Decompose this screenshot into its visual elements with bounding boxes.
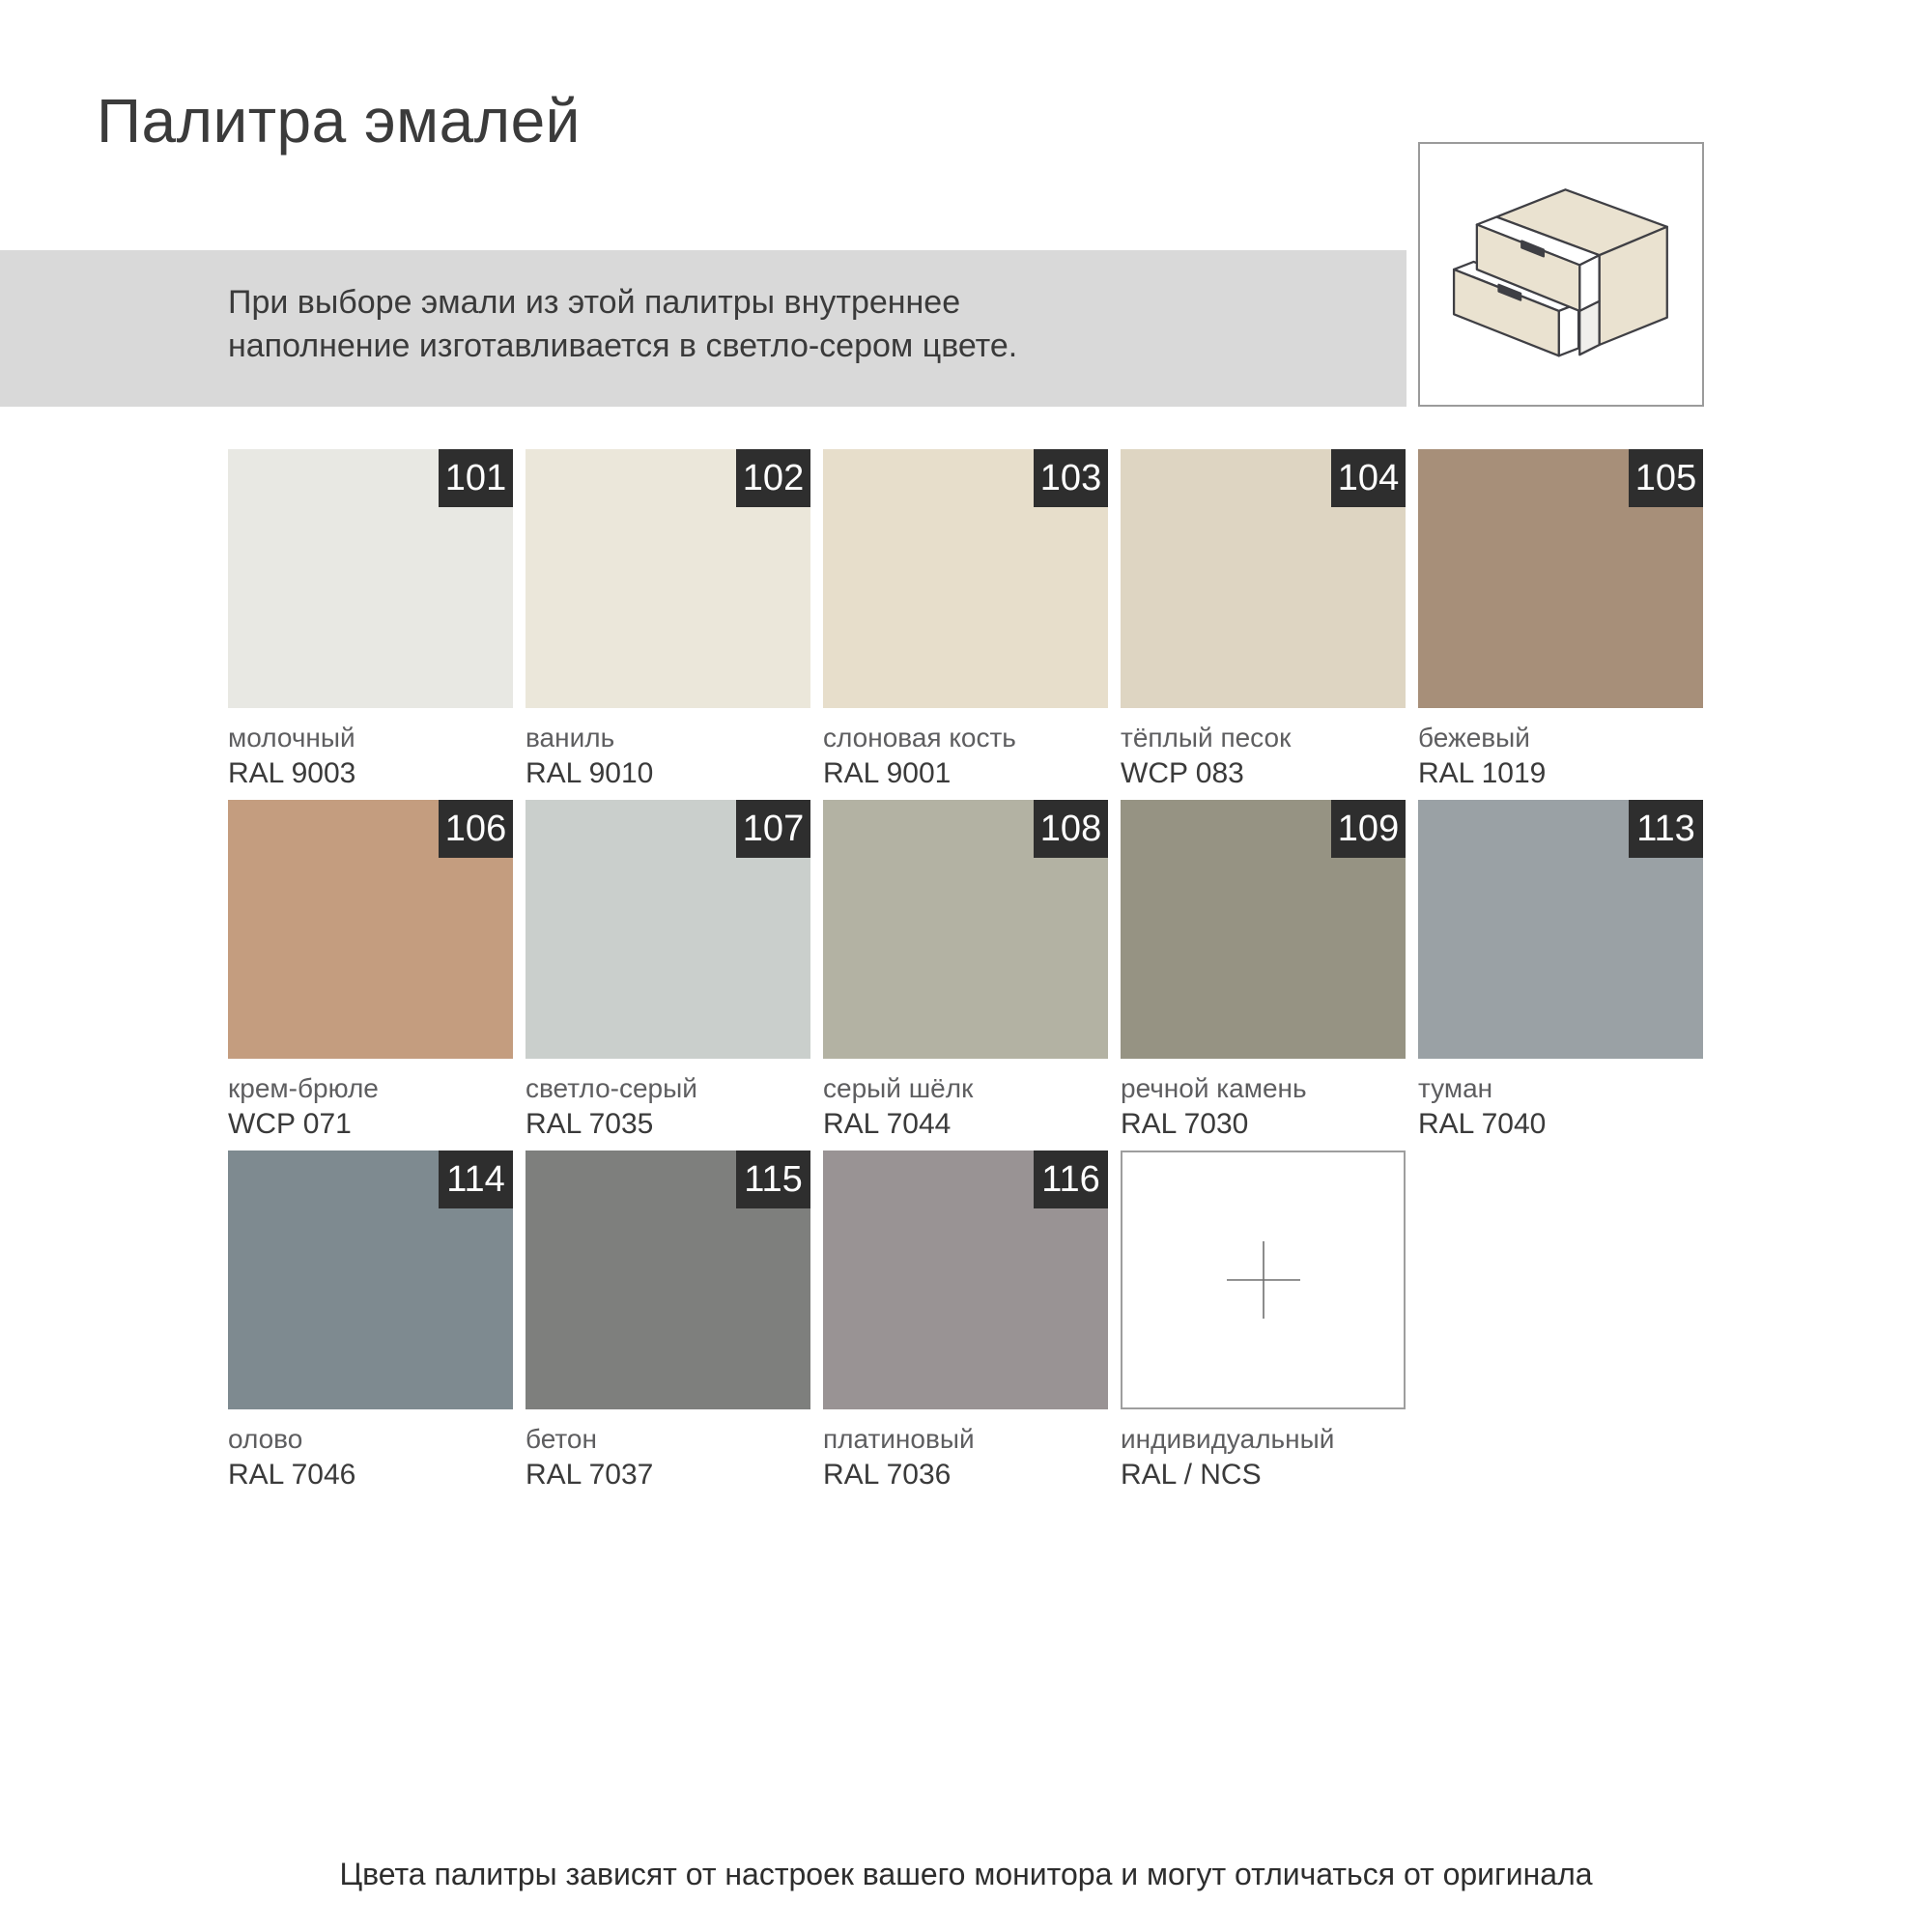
swatch-cell: 107 светло-серый RAL 7035 <box>526 800 810 1151</box>
swatch-number-badge: 109 <box>1331 800 1406 858</box>
swatch-cell: 109 речной камень RAL 7030 <box>1121 800 1406 1151</box>
color-swatch: 115 <box>526 1151 810 1409</box>
color-swatch: 113 <box>1418 800 1703 1059</box>
swatch-labels: платиновый RAL 7036 <box>823 1421 1108 1493</box>
drawer-cabinet-icon <box>1420 144 1702 405</box>
swatch-number-badge: 116 <box>1034 1151 1108 1208</box>
color-swatch: 105 <box>1418 449 1703 708</box>
swatch-number-badge: 105 <box>1629 449 1703 507</box>
swatch-cell: 102 ваниль RAL 9010 <box>526 449 810 800</box>
swatch-code: RAL 7040 <box>1418 1106 1703 1143</box>
swatch-code: RAL 7035 <box>526 1106 810 1143</box>
swatch-labels: индивидуальный RAL / NCS <box>1121 1421 1406 1493</box>
swatch-code: RAL 7037 <box>526 1457 810 1493</box>
swatch-name: молочный <box>228 720 513 755</box>
swatch-number-badge: 103 <box>1034 449 1108 507</box>
swatch-labels: бетон RAL 7037 <box>526 1421 810 1493</box>
info-banner-line2: наполнение изготавливается в светло-серо… <box>228 325 1017 368</box>
swatch-cell: 113 туман RAL 7040 <box>1418 800 1703 1151</box>
plus-icon <box>1223 1239 1304 1321</box>
swatch-code: RAL / NCS <box>1121 1457 1406 1493</box>
swatch-name: слоновая кость <box>823 720 1108 755</box>
swatch-name: платиновый <box>823 1421 1108 1457</box>
swatch-labels: речной камень RAL 7030 <box>1121 1070 1406 1143</box>
swatch-cell: 104 тёплый песок WCP 083 <box>1121 449 1406 800</box>
swatch-code: RAL 9010 <box>526 755 810 792</box>
swatch-code: RAL 7046 <box>228 1457 513 1493</box>
swatch-number-badge: 107 <box>736 800 810 858</box>
swatch-cell: 101 молочный RAL 9003 <box>228 449 513 800</box>
color-swatch: 107 <box>526 800 810 1059</box>
swatch-code: RAL 1019 <box>1418 755 1703 792</box>
swatch-number-badge: 106 <box>439 800 513 858</box>
swatch-cell: 106 крем-брюле WCP 071 <box>228 800 513 1151</box>
footer-disclaimer: Цвета палитры зависят от настроек вашего… <box>0 1857 1932 1892</box>
swatch-name: ваниль <box>526 720 810 755</box>
swatch-code: RAL 9003 <box>228 755 513 792</box>
swatch-number-badge: 114 <box>439 1151 513 1208</box>
swatch-labels: крем-брюле WCP 071 <box>228 1070 513 1143</box>
swatch-name: речной камень <box>1121 1070 1406 1106</box>
swatch-name: бежевый <box>1418 720 1703 755</box>
color-swatch: 116 <box>823 1151 1108 1409</box>
swatch-name: тёплый песок <box>1121 720 1406 755</box>
color-swatch: 103 <box>823 449 1108 708</box>
swatch-cell: 105 бежевый RAL 1019 <box>1418 449 1703 800</box>
swatch-labels: слоновая кость RAL 9001 <box>823 720 1108 792</box>
color-swatch: 109 <box>1121 800 1406 1059</box>
swatch-code: RAL 7036 <box>823 1457 1108 1493</box>
swatch-cell: 108 серый шёлк RAL 7044 <box>823 800 1108 1151</box>
swatch-cell: 114 олово RAL 7046 <box>228 1151 513 1501</box>
swatch-number-badge: 101 <box>439 449 513 507</box>
swatch-labels: бежевый RAL 1019 <box>1418 720 1703 792</box>
swatch-cell: 116 платиновый RAL 7036 <box>823 1151 1108 1501</box>
swatch-number-badge: 108 <box>1034 800 1108 858</box>
swatch-name: светло-серый <box>526 1070 810 1106</box>
swatch-labels: ваниль RAL 9010 <box>526 720 810 792</box>
cabinet-illustration-frame <box>1418 142 1704 407</box>
swatch-cell: 103 слоновая кость RAL 9001 <box>823 449 1108 800</box>
swatch-name: крем-брюле <box>228 1070 513 1106</box>
swatch-number-badge: 113 <box>1629 800 1703 858</box>
swatch-name: олово <box>228 1421 513 1457</box>
swatch-code: RAL 9001 <box>823 755 1108 792</box>
color-swatch <box>1121 1151 1406 1409</box>
swatch-cell: 115 бетон RAL 7037 <box>526 1151 810 1501</box>
swatch-labels: молочный RAL 9003 <box>228 720 513 792</box>
swatch-labels: светло-серый RAL 7035 <box>526 1070 810 1143</box>
swatch-labels: тёплый песок WCP 083 <box>1121 720 1406 792</box>
color-swatch: 104 <box>1121 449 1406 708</box>
swatch-number-badge: 115 <box>736 1151 810 1208</box>
swatch-number-badge: 104 <box>1331 449 1406 507</box>
info-banner-text: При выборе эмали из этой палитры внутрен… <box>228 281 1017 368</box>
swatch-labels: олово RAL 7046 <box>228 1421 513 1493</box>
swatch-code: WCP 083 <box>1121 755 1406 792</box>
swatch-name: индивидуальный <box>1121 1421 1406 1457</box>
swatch-cell: индивидуальный RAL / NCS <box>1121 1151 1406 1501</box>
swatch-name: бетон <box>526 1421 810 1457</box>
color-swatch: 114 <box>228 1151 513 1409</box>
color-swatch: 101 <box>228 449 513 708</box>
swatch-labels: серый шёлк RAL 7044 <box>823 1070 1108 1143</box>
swatch-labels: туман RAL 7040 <box>1418 1070 1703 1143</box>
swatch-code: RAL 7030 <box>1121 1106 1406 1143</box>
swatch-name: серый шёлк <box>823 1070 1108 1106</box>
color-swatch: 106 <box>228 800 513 1059</box>
swatch-code: WCP 071 <box>228 1106 513 1143</box>
info-banner: При выборе эмали из этой палитры внутрен… <box>0 250 1406 407</box>
swatch-grid: 101 молочный RAL 9003 102 ваниль RAL 901… <box>228 449 1703 1501</box>
page-title: Палитра эмалей <box>97 85 581 156</box>
info-banner-line1: При выборе эмали из этой палитры внутрен… <box>228 281 1017 325</box>
swatch-code: RAL 7044 <box>823 1106 1108 1143</box>
swatch-number-badge: 102 <box>736 449 810 507</box>
swatch-name: туман <box>1418 1070 1703 1106</box>
color-swatch: 102 <box>526 449 810 708</box>
color-swatch: 108 <box>823 800 1108 1059</box>
